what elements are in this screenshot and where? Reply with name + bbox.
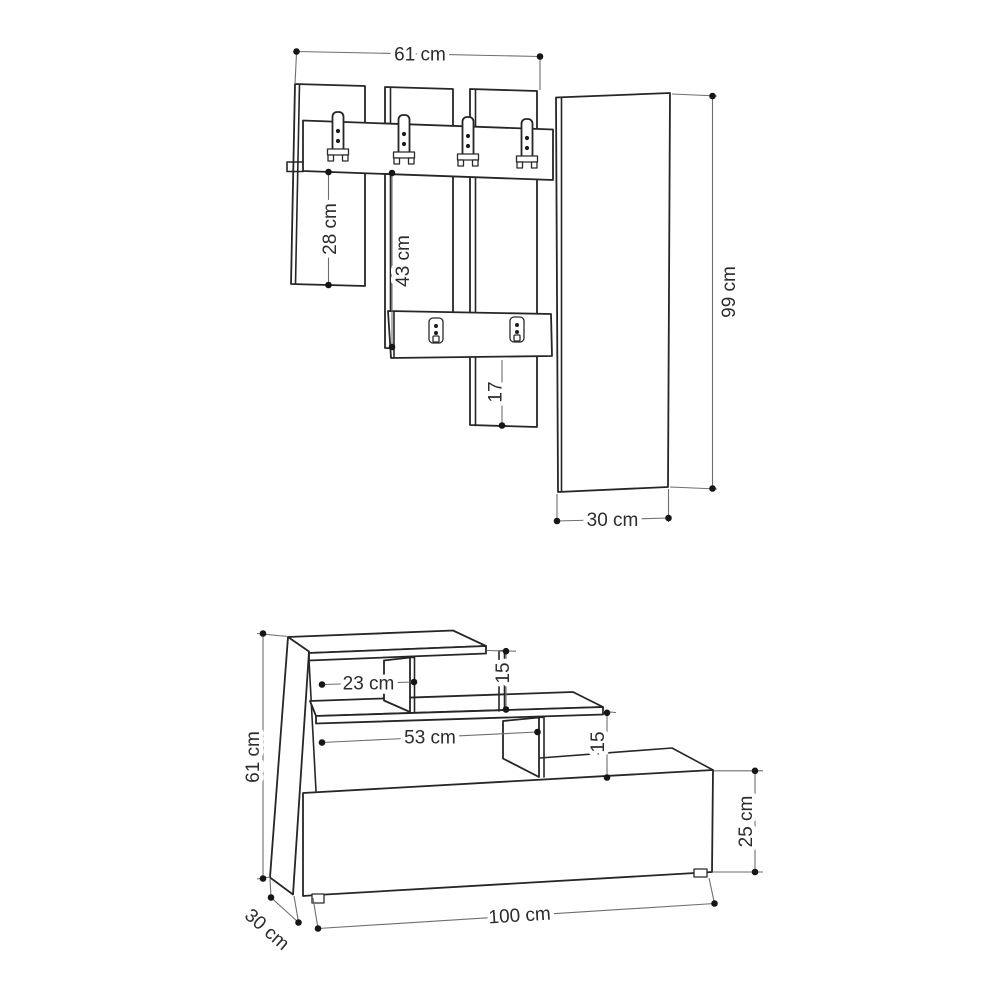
dim-label-bench-height: 61 cm xyxy=(243,731,264,783)
dim-label-top-step: 15 xyxy=(493,662,514,683)
dim-mirror-width: 30 cm xyxy=(554,489,672,531)
dim-label-top-compartment: 23 cm xyxy=(343,674,395,695)
dim-wall-top-width: 61 cm xyxy=(293,45,543,91)
technical-drawing: 61 cm 28 cm 43 cm 17 99 cm xyxy=(0,0,1000,1000)
dim-label-middle-step: 15 xyxy=(588,731,609,752)
lower-shelf xyxy=(388,311,552,358)
cabinet-foot xyxy=(694,869,707,877)
wall-unit-diagram: 61 cm 28 cm 43 cm 17 99 cm xyxy=(287,45,740,532)
dim-label-mirror-height: 99 cm xyxy=(719,266,740,318)
dim-label-middle-shelf: 53 cm xyxy=(404,728,456,749)
dim-label-left-panel-drop: 28 cm xyxy=(320,203,341,255)
dim-label-bench-width: 100 cm xyxy=(488,904,552,929)
dim-label-lower-panel-extension: 17 xyxy=(486,381,507,402)
keyhole-bracket-icon xyxy=(429,318,443,343)
middle-shelf xyxy=(310,692,603,724)
bench-diagram: 61 cm 23 cm 15 53 cm 15 xyxy=(240,630,763,955)
dim-label-bench-depth: 30 cm xyxy=(240,905,293,955)
middle-divider xyxy=(503,717,544,777)
mirror-panel xyxy=(556,93,670,492)
dim-base-height: 25 cm xyxy=(713,768,763,876)
dim-label-mirror-width: 30 cm xyxy=(587,510,639,531)
base-cabinet xyxy=(303,748,713,903)
furniture-dimension-sheet: 61 cm 28 cm 43 cm 17 99 cm xyxy=(0,0,1000,1000)
dim-label-base-height: 25 cm xyxy=(736,796,757,848)
dim-label-wall-top-width: 61 cm xyxy=(394,45,446,66)
top-slab xyxy=(288,631,486,661)
dim-label-center-panel-drop: 43 cm xyxy=(393,235,414,287)
keyhole-bracket-icon xyxy=(510,317,524,342)
dim-middle-step: 15 xyxy=(588,710,616,781)
dim-mirror-height: 99 cm xyxy=(670,93,740,492)
